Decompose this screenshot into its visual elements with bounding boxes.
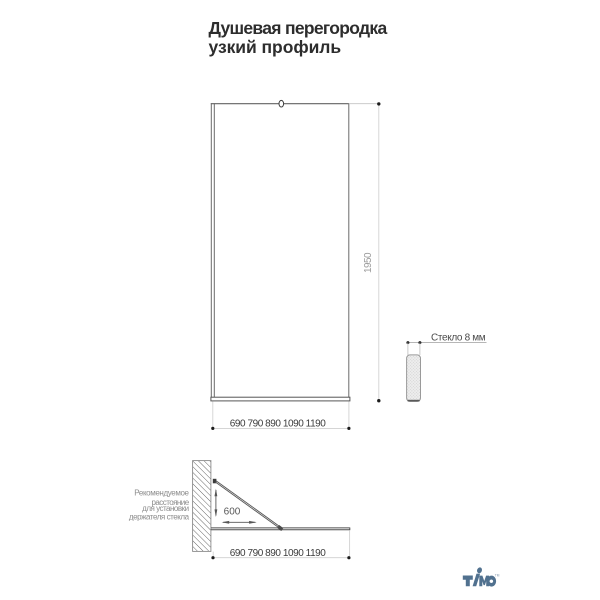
svg-text:600: 600: [224, 507, 241, 518]
svg-text:Стекло 8 мм: Стекло 8 мм: [431, 333, 486, 344]
svg-text:1950: 1950: [363, 252, 374, 273]
svg-text:Душевая перегородка: Душевая перегородка: [209, 18, 388, 38]
svg-text:TM: TM: [495, 574, 500, 578]
svg-text:держателя стекла: держателя стекла: [129, 512, 190, 521]
svg-text:Рекомендуемое: Рекомендуемое: [134, 488, 189, 497]
svg-text:690 790 890 1090 1190: 690 790 890 1090 1190: [230, 548, 327, 559]
svg-text:690 790 890 1090 1190: 690 790 890 1090 1190: [230, 418, 327, 429]
svg-text:узкий профиль: узкий профиль: [209, 37, 342, 57]
